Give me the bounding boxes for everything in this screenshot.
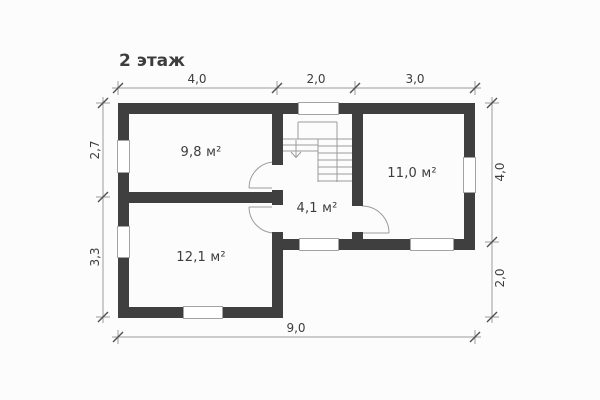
- wall-interior-hall-right-stub: [352, 232, 363, 250]
- wall-interior-horizontal: [121, 192, 272, 203]
- stair-direction-arrow: [291, 140, 301, 158]
- window-left-lower: [117, 226, 130, 258]
- room-area-label-4-1: 4,1 м²: [267, 201, 367, 216]
- dim-label-right-2: 2,0: [493, 248, 507, 308]
- window-bottom-right: [410, 238, 454, 251]
- staircase: [283, 122, 352, 182]
- wall-exterior-top: [118, 103, 475, 114]
- plan-linework: [0, 0, 600, 400]
- window-bottom-left: [183, 306, 223, 319]
- window-left-upper: [117, 140, 130, 173]
- dim-label-top-2: 2,0: [286, 72, 346, 86]
- window-right: [463, 157, 476, 193]
- dim-label-bottom: 9,0: [266, 321, 326, 335]
- dim-label-right-1: 4,0: [493, 142, 507, 202]
- wall-exterior-left-section-right: [272, 232, 283, 318]
- room-area-label-12-1: 12,1 м²: [151, 250, 251, 265]
- dim-label-left-1: 2,7: [88, 120, 102, 180]
- room-area-label-11-0: 11,0 м²: [362, 166, 462, 181]
- wall-exterior-left: [118, 103, 129, 318]
- dim-label-top-1: 4,0: [167, 72, 227, 86]
- door-room-9-8: [249, 162, 275, 188]
- wall-interior-hall-left-upper: [272, 103, 283, 165]
- window-top: [298, 102, 339, 115]
- window-bottom-middle: [299, 238, 339, 251]
- stair-treads: [283, 139, 352, 182]
- floorplan-canvas: 2 этаж 9,8 м²: [0, 0, 600, 400]
- wall-interior-hall-right: [352, 103, 363, 206]
- dim-label-left-2: 3,3: [88, 227, 102, 287]
- dim-label-top-3: 3,0: [385, 72, 445, 86]
- room-area-label-9-8: 9,8 м²: [151, 145, 251, 160]
